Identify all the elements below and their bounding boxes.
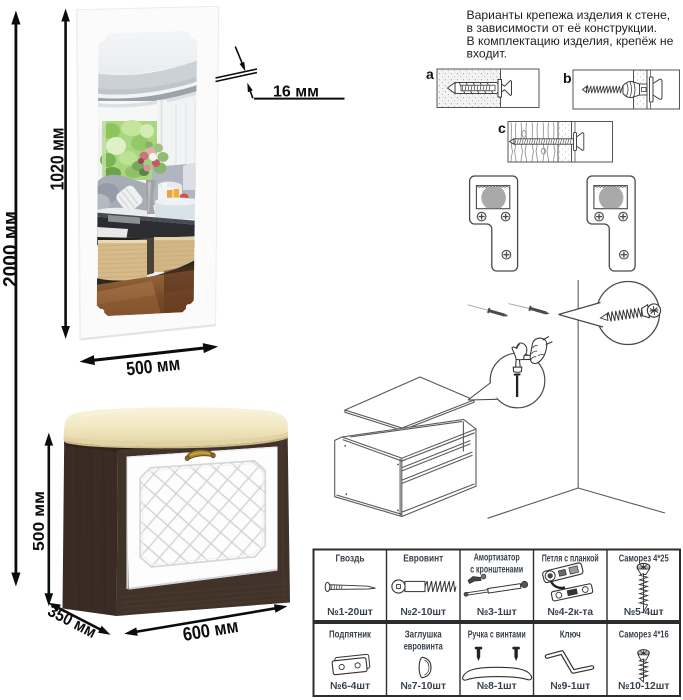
svg-text:2000 мм: 2000 мм xyxy=(0,211,22,287)
svg-text:№9-1шт: №9-1шт xyxy=(550,681,590,692)
svg-text:Ручка с винтами: Ручка с винтами xyxy=(468,630,526,641)
svg-text:с кронштенами: с кронштенами xyxy=(470,565,523,576)
svg-text:№4-2к-та: №4-2к-та xyxy=(547,607,593,618)
svg-text:16 мм: 16 мм xyxy=(273,84,319,101)
svg-text:Евровинт: Евровинт xyxy=(403,554,443,565)
svg-text:входит.: входит. xyxy=(467,47,507,61)
svg-text:500 мм: 500 мм xyxy=(31,491,48,551)
svg-text:Саморез 4*25: Саморез 4*25 xyxy=(619,554,669,565)
svg-text:Заглушка: Заглушка xyxy=(405,630,442,641)
svg-text:№3-1шт: №3-1шт xyxy=(477,607,517,618)
svg-text:евровинта: евровинта xyxy=(404,642,443,653)
svg-text:Ключ: Ключ xyxy=(560,630,581,641)
svg-text:Гвоздь: Гвоздь xyxy=(336,554,365,565)
svg-text:600 мм: 600 мм xyxy=(181,616,240,646)
svg-text:c: c xyxy=(498,120,506,136)
svg-text:Петля с планкой: Петля с планкой xyxy=(542,554,599,565)
svg-text:№1-20шт: №1-20шт xyxy=(327,607,373,618)
svg-text:№2-10шт: №2-10шт xyxy=(400,607,446,618)
svg-text:Саморез 4*16: Саморез 4*16 xyxy=(619,630,669,641)
svg-text:500 мм: 500 мм xyxy=(125,354,181,381)
svg-text:1020 мм: 1020 мм xyxy=(48,128,68,191)
svg-text:a: a xyxy=(426,66,434,82)
svg-text:№8-1шт: №8-1шт xyxy=(477,681,517,692)
svg-text:Подпятник: Подпятник xyxy=(329,630,372,641)
svg-text:№6-4шт: №6-4шт xyxy=(330,681,370,692)
svg-text:b: b xyxy=(563,70,572,86)
svg-text:№7-10шт: №7-10шт xyxy=(400,681,446,692)
svg-text:Амортизатор: Амортизатор xyxy=(474,553,520,564)
